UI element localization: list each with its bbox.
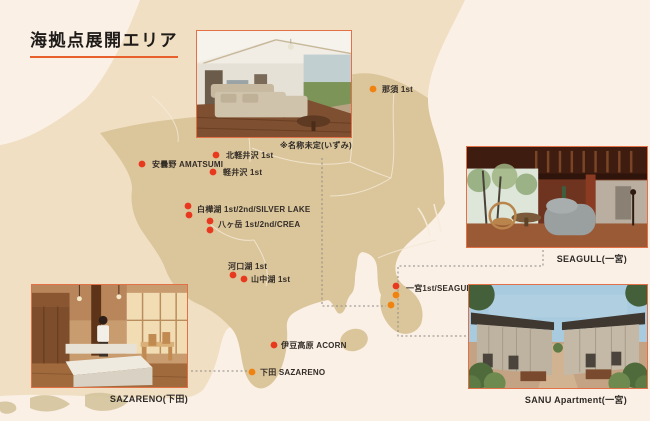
- location-dot-red: [213, 152, 220, 159]
- photo-sazareno-caption: SAZARENO(下田): [31, 392, 188, 405]
- location-label: 那須 1st: [382, 84, 413, 94]
- page-title: 海拠点展開エリア: [30, 26, 178, 58]
- location-dot-red: [139, 161, 146, 168]
- location-label: 安曇野 AMATSUMI: [152, 159, 223, 169]
- location-label: 白樺湖 1st/2nd/SILVER LAKE: [197, 204, 311, 214]
- location-label: 河口湖 1st: [228, 261, 267, 271]
- land-fragment: [0, 401, 16, 413]
- location-dot-red: [271, 342, 278, 349]
- location-label: 軽井沢 1st: [223, 167, 262, 177]
- izumi-interior-scene: [197, 31, 351, 137]
- location-label: 一宮1st/SEAGULL: [406, 283, 477, 293]
- location-dot-red: [230, 272, 237, 279]
- location-label: 伊豆高原 ACORN: [280, 340, 347, 350]
- photo-sanu-apartment: [468, 284, 648, 389]
- sanu-exterior-scene: [469, 285, 647, 388]
- location-dot-red: [207, 227, 214, 234]
- location-label: 北軽井沢 1st: [226, 150, 274, 160]
- marker-izukogen: 伊豆高原 ACORN: [271, 340, 347, 350]
- seagull-interior-scene: [467, 147, 647, 247]
- location-dot-red: [207, 218, 214, 225]
- location-dot-red: [393, 283, 400, 290]
- sazareno-interior-scene: [32, 285, 187, 387]
- location-dot-orange: [370, 86, 377, 93]
- location-label: 八ヶ岳 1st/2nd/CREA: [217, 219, 300, 229]
- location-label: 下田 SAZARENO: [260, 368, 325, 377]
- location-dot-orange: [388, 302, 395, 309]
- location-dot-red: [185, 203, 192, 210]
- location-dot-red: [241, 276, 248, 283]
- marker-shimoda: 下田 SAZARENO: [249, 368, 326, 377]
- location-dot-orange: [393, 292, 400, 299]
- location-dot-orange: [249, 369, 256, 376]
- photo-sanu-caption: SANU Apartment(一宮): [468, 393, 648, 406]
- photo-izumi-caption: ※名称未定(いずみ): [196, 140, 352, 151]
- photo-seagull-caption: SEAGULL(一宮): [466, 252, 648, 265]
- location-dot-red: [186, 212, 193, 219]
- marker-azumino: 安曇野 AMATSUMI: [139, 159, 224, 169]
- photo-sazareno: [31, 284, 188, 388]
- location-dot-red: [210, 169, 217, 176]
- location-label: 山中湖 1st: [251, 274, 290, 284]
- photo-izumi-rendering: [196, 30, 352, 138]
- photo-seagull: [466, 146, 648, 248]
- sea-base-area-infographic: 那須 1st北軽井沢 1st安曇野 AMATSUMI軽井沢 1st白樺湖 1st…: [0, 0, 650, 421]
